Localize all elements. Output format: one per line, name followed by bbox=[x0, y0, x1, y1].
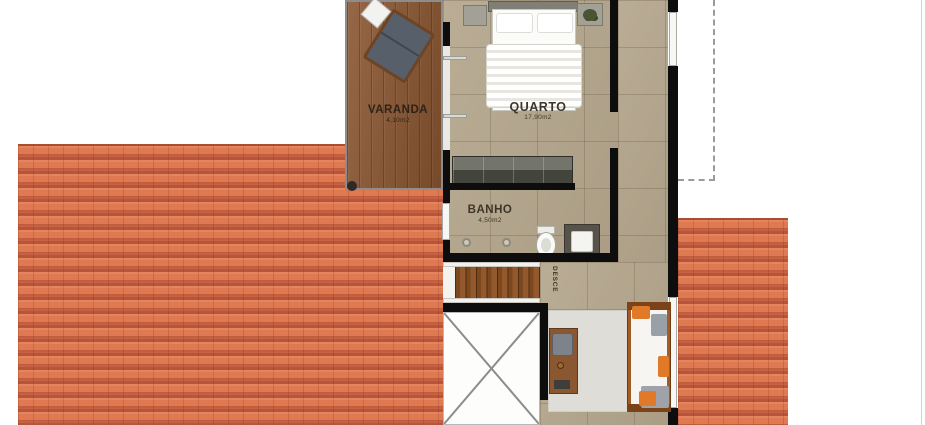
single-bed-pillow bbox=[651, 314, 667, 336]
corridor-floor bbox=[618, 0, 668, 262]
window-right-top bbox=[669, 12, 677, 66]
quarto-area: 17,90m2 bbox=[486, 114, 590, 121]
sliding-door-panel-top bbox=[443, 56, 467, 60]
sliding-door-panel-bottom bbox=[443, 114, 467, 118]
banho-area: 4,50m2 bbox=[451, 217, 529, 224]
banho-label: BANHO bbox=[451, 204, 529, 217]
wall-quarto-right-upper bbox=[610, 0, 618, 112]
roof-projection-vertical-dashed-line bbox=[713, 0, 715, 181]
roof-projection-horizontal-dashed-line bbox=[678, 179, 715, 181]
banho-window bbox=[442, 203, 450, 240]
deck-post bbox=[347, 181, 357, 191]
nightstand-left bbox=[463, 5, 487, 26]
stairs-landing bbox=[443, 267, 455, 298]
shower-drain-right bbox=[502, 238, 511, 247]
stairs-label: DESCE bbox=[542, 266, 558, 306]
desk-chair bbox=[552, 333, 573, 356]
void-x-lines bbox=[444, 313, 539, 424]
closet-dividers bbox=[453, 157, 572, 184]
pillow-left bbox=[496, 13, 533, 33]
wall-banho-left-upper bbox=[443, 150, 450, 203]
wall-below-stairs bbox=[443, 303, 548, 312]
cushion-orange-mid bbox=[658, 356, 669, 377]
void-area bbox=[443, 312, 540, 425]
varanda-label: VARANDA bbox=[352, 104, 444, 117]
closet bbox=[452, 156, 573, 185]
shower-drain-left bbox=[462, 238, 471, 247]
desk-bottle bbox=[557, 362, 564, 369]
desk-item bbox=[554, 380, 570, 389]
lounge-chair-seam bbox=[381, 32, 419, 57]
floor-plan: VARANDA 4,10m2 QUARTO 17,90m2 BANHO 4,50… bbox=[0, 0, 925, 425]
pillow-right bbox=[537, 13, 573, 33]
cushion-orange-bottom bbox=[639, 391, 656, 406]
plant bbox=[583, 9, 597, 21]
wall-quarto-right-lower bbox=[610, 148, 618, 262]
wall-banho-bottom bbox=[443, 253, 618, 262]
banho-label-block: BANHO 4,50m2 bbox=[451, 204, 529, 225]
bed-blanket bbox=[486, 44, 582, 108]
cushion-orange-top bbox=[632, 306, 650, 319]
quarto-label: QUARTO bbox=[486, 100, 590, 114]
image-right-border bbox=[921, 0, 922, 425]
wall-outer-right-top bbox=[668, 0, 678, 12]
toilet-bowl-inner bbox=[541, 238, 551, 252]
right-roof bbox=[678, 218, 788, 425]
stairs-treads bbox=[455, 267, 540, 298]
sink bbox=[571, 231, 593, 252]
varanda-area: 4,10m2 bbox=[352, 117, 444, 124]
quarto-label-block: QUARTO 17,90m2 bbox=[486, 100, 590, 122]
sliding-door-opening bbox=[443, 46, 450, 150]
nightstand-right bbox=[577, 3, 603, 26]
wall-outer-right-mid bbox=[668, 66, 678, 297]
wall-quarto-banho bbox=[450, 183, 575, 190]
wall-void-right bbox=[540, 312, 548, 400]
wall-varanda-quarto-top bbox=[443, 22, 450, 46]
varanda-label-block: VARANDA 4,10m2 bbox=[352, 104, 444, 125]
